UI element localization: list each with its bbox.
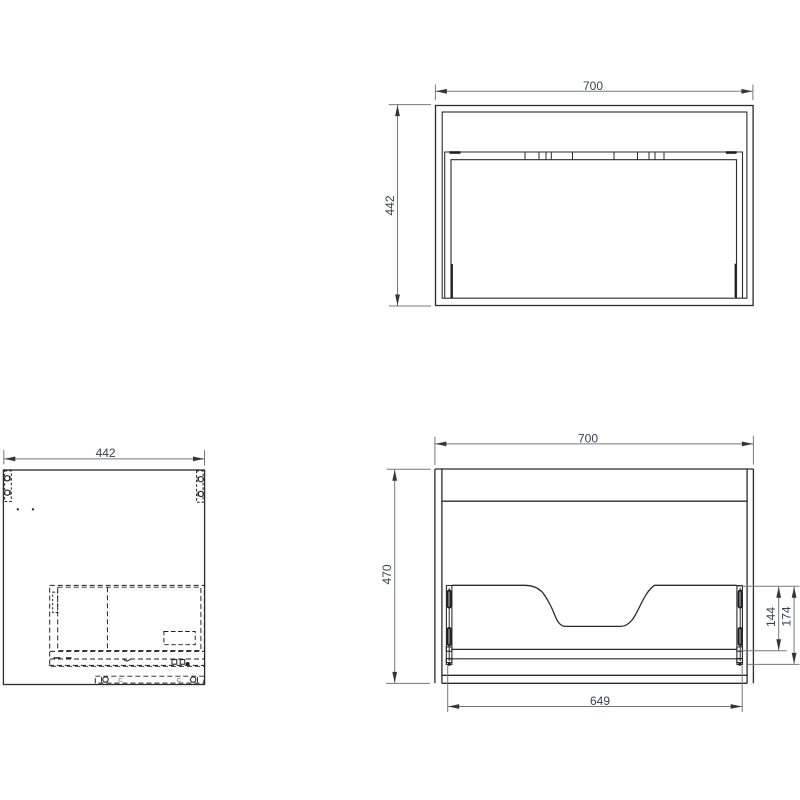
svg-text:700: 700	[578, 432, 598, 446]
svg-text:442: 442	[96, 446, 116, 460]
svg-text:649: 649	[590, 694, 610, 708]
svg-text:442: 442	[383, 195, 397, 215]
svg-text:C: C	[177, 678, 181, 684]
svg-text:700: 700	[583, 79, 603, 93]
svg-text:144: 144	[764, 607, 778, 627]
svg-text:174: 174	[780, 606, 794, 626]
svg-text:470: 470	[380, 564, 394, 584]
svg-text:C: C	[118, 678, 122, 684]
